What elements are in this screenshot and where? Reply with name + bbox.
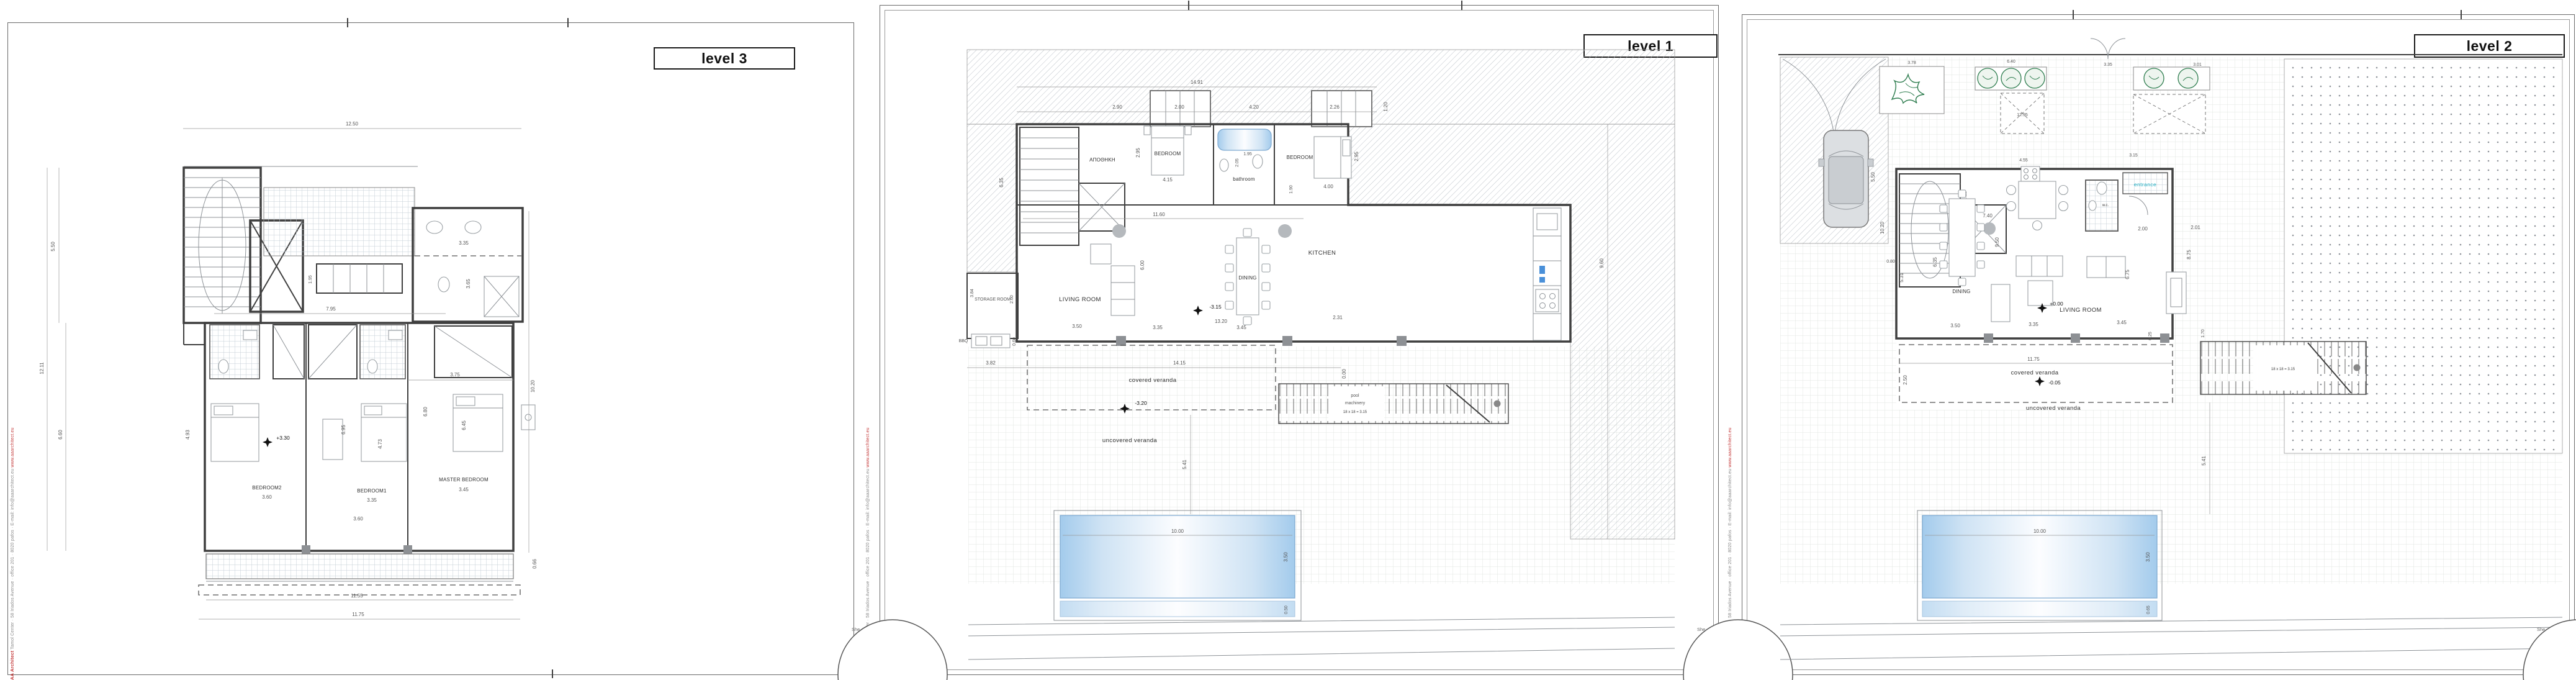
svg-text:5.50: 5.50	[1870, 172, 1876, 182]
svg-text:0.65: 0.65	[2146, 605, 2151, 614]
svg-text:bathroom: bathroom	[1233, 176, 1255, 182]
storage-room: STORAGE ROOM 3.84 2.60	[967, 273, 1018, 338]
svg-text:6.80: 6.80	[423, 407, 428, 417]
svg-text:2.00: 2.00	[2138, 226, 2148, 232]
bed-master	[453, 394, 503, 451]
room-label-master-bedroom: MASTER BEDROOM	[439, 477, 489, 483]
svg-text:6.95: 6.95	[341, 425, 346, 435]
level-marker: -0.05	[2048, 379, 2061, 386]
svg-text:3.75: 3.75	[450, 372, 460, 378]
level-marker: -3.15	[1209, 304, 1222, 310]
svg-text:3.50: 3.50	[1072, 324, 1082, 329]
svg-text:2.26: 2.26	[1330, 104, 1340, 110]
svg-text:5.50: 5.50	[50, 242, 56, 252]
svg-text:4.93: 4.93	[185, 430, 191, 440]
svg-text:13.20: 13.20	[1215, 319, 1228, 324]
svg-text:4.00: 4.00	[1323, 184, 1333, 189]
svg-text:1.20: 1.20	[1383, 102, 1389, 112]
level1-plan: ΑΠΟΘΗΚΗ BEDROOM 4.15 2.95 bathroom 1.95 …	[959, 1, 1793, 680]
svg-text:5.41: 5.41	[2201, 456, 2207, 466]
wc: w.c.	[2086, 180, 2118, 231]
svg-text:9.50: 9.50	[1994, 237, 2000, 247]
svg-text:She: She	[852, 627, 860, 632]
svg-text:LIVING ROOM: LIVING ROOM	[1059, 296, 1101, 303]
dim: 3.35	[459, 240, 469, 246]
svg-text:8.75: 8.75	[2186, 250, 2192, 260]
pool: 10.00 3.50 0.65	[1917, 510, 2162, 620]
svg-text:4.73: 4.73	[377, 439, 383, 449]
skylight	[2133, 94, 2205, 134]
svg-text:0.00: 0.00	[1341, 369, 1347, 379]
pool: 10.00 3.50 0.50	[1054, 510, 1301, 620]
bedroom-band: BEDROOM2 BEDROOM1 MASTER BEDROOM 3.60 3.…	[185, 323, 535, 554]
svg-text:4.20: 4.20	[1249, 104, 1259, 110]
svg-text:10.20: 10.20	[530, 379, 536, 392]
svg-text:14.91: 14.91	[1191, 79, 1204, 85]
car	[1819, 130, 1873, 227]
dim: 3.60	[262, 494, 272, 500]
room-label-apothiki: ΑΠΟΘΗΚΗ	[1089, 157, 1115, 163]
level-marker: +0.00	[2050, 301, 2063, 307]
svg-text:6.35: 6.35	[1932, 257, 1938, 267]
dim: 3.65	[466, 279, 471, 289]
dim: 12.50	[346, 121, 359, 127]
svg-text:11.55: 11.55	[351, 593, 363, 599]
svg-text:7.40: 7.40	[1983, 213, 1993, 219]
pool-machinery: pool machinery 18 x 18 = 3.15	[1279, 384, 1508, 424]
bed	[361, 404, 407, 461]
svg-text:3.50: 3.50	[2145, 552, 2151, 562]
svg-text:3.78: 3.78	[1907, 61, 1916, 65]
svg-text:6.75: 6.75	[2125, 270, 2130, 279]
column	[1278, 224, 1292, 238]
svg-text:9.60: 9.60	[1599, 258, 1605, 268]
svg-text:DINING: DINING	[1238, 275, 1256, 281]
svg-text:DINING: DINING	[1952, 289, 1970, 294]
svg-text:BBQ: BBQ	[959, 339, 968, 343]
svg-text:entrance: entrance	[2134, 181, 2156, 188]
svg-text:10.00: 10.00	[1171, 528, 1184, 534]
svg-text:2.31: 2.31	[1333, 315, 1343, 320]
wardrobe-row: 1.95	[308, 264, 402, 293]
uncovered-veranda-label: uncovered veranda	[1102, 437, 1157, 444]
sheet-stamp: She	[1683, 620, 1793, 680]
bed	[211, 404, 259, 461]
sheet-stamp: She	[2523, 620, 2576, 680]
svg-text:3.50: 3.50	[1950, 323, 1960, 329]
svg-text:2.95: 2.95	[1135, 148, 1141, 158]
level2-plan: 5.50 10.20 0.80 3.78 6.40 3.35 3.	[1778, 10, 2576, 680]
svg-text:3.84: 3.84	[970, 289, 975, 297]
svg-text:12.95: 12.95	[2017, 113, 2028, 117]
plans-canvas: 12.50 3.35	[0, 0, 2576, 680]
svg-text:LIVING ROOM: LIVING ROOM	[2060, 307, 2102, 314]
level-marker-icon	[263, 437, 272, 447]
svg-text:3.35: 3.35	[2104, 63, 2112, 67]
dim: 3.60	[353, 516, 363, 522]
svg-text:She: She	[2537, 627, 2545, 632]
svg-text:11.60: 11.60	[1153, 212, 1165, 217]
svg-text:2.05: 2.05	[1235, 158, 1240, 167]
svg-text:3.82: 3.82	[986, 360, 996, 366]
svg-text:0.80: 0.80	[1886, 260, 1895, 264]
desk	[323, 419, 343, 460]
level-marker: +3.30	[276, 435, 290, 441]
svg-text:2.95: 2.95	[1354, 152, 1359, 161]
sheet-stamp: She	[838, 620, 947, 680]
svg-text:6.35: 6.35	[999, 178, 1004, 188]
covered-veranda-label: covered veranda	[1129, 377, 1177, 384]
dim: 3.35	[367, 497, 377, 503]
dim: 3.45	[459, 487, 469, 492]
room-label-bedroom1: BEDROOM1	[357, 488, 387, 494]
level3-plan: 12.50 3.35	[39, 18, 947, 680]
svg-text:0.25: 0.25	[2148, 332, 2153, 340]
svg-text:0.50: 0.50	[1284, 605, 1289, 614]
svg-text:1.70: 1.70	[2201, 329, 2205, 338]
svg-text:11.75: 11.75	[2027, 356, 2040, 362]
uncovered-veranda-label: uncovered veranda	[2026, 405, 2081, 412]
svg-text:5.31: 5.31	[1899, 273, 1904, 283]
svg-text:2.00: 2.00	[1174, 104, 1184, 110]
svg-text:18 x 18 = 3.15: 18 x 18 = 3.15	[2271, 368, 2295, 371]
svg-text:3.15: 3.15	[2129, 153, 2138, 158]
svg-text:3.50: 3.50	[1283, 552, 1289, 562]
svg-text:3.45: 3.45	[2117, 320, 2127, 325]
svg-text:18 x 18 = 3.15: 18 x 18 = 3.15	[1343, 410, 1367, 414]
svg-text:6.45: 6.45	[461, 420, 467, 430]
svg-text:0.60: 0.60	[1012, 337, 1017, 346]
svg-text:3.45: 3.45	[1236, 325, 1246, 330]
exterior-steps: 18 x 18 = 3.15	[2200, 342, 2366, 394]
balcony	[199, 554, 520, 595]
tree: 3.78	[1880, 61, 1944, 114]
svg-text:2.60: 2.60	[1010, 295, 1014, 304]
covered-veranda-label: covered veranda	[2011, 369, 2059, 376]
svg-text:0.66: 0.66	[532, 559, 538, 569]
svg-text:4.55: 4.55	[2019, 158, 2028, 163]
scanned-floorplan-sheets: level 3 level 1 level 2 AA Architect Tam…	[0, 0, 2576, 680]
svg-text:1.95: 1.95	[1243, 152, 1252, 156]
svg-text:2.50: 2.50	[1903, 375, 1908, 385]
dim: 1.95	[308, 275, 313, 284]
svg-text:14.15: 14.15	[1173, 360, 1186, 366]
svg-text:machinery: machinery	[1345, 401, 1366, 406]
svg-text:STORAGE ROOM: STORAGE ROOM	[975, 297, 1011, 302]
svg-text:6.60: 6.60	[58, 430, 63, 440]
svg-text:12.11: 12.11	[39, 362, 45, 374]
svg-text:10.20: 10.20	[1880, 221, 1885, 234]
planter	[2133, 67, 2210, 90]
svg-text:10.00: 10.00	[2033, 528, 2047, 534]
svg-text:pool: pool	[1351, 394, 1359, 398]
svg-text:3.35: 3.35	[2029, 322, 2038, 327]
svg-text:BEDROOM: BEDROOM	[1287, 155, 1313, 160]
svg-text:2.90: 2.90	[1112, 104, 1122, 110]
svg-text:6.00: 6.00	[1140, 260, 1145, 270]
svg-text:6.40: 6.40	[2007, 60, 2015, 64]
svg-text:4.15: 4.15	[1163, 177, 1173, 183]
column	[1112, 224, 1126, 238]
master-bathroom: 3.35 3.65	[413, 208, 523, 322]
svg-text:3.01: 3.01	[2193, 63, 2202, 67]
roof-terrace	[264, 188, 415, 256]
svg-text:3.35: 3.35	[1153, 325, 1163, 330]
svg-text:1.90: 1.90	[1289, 185, 1294, 194]
dim: 7.95	[326, 306, 336, 312]
skylight: 12.95	[2001, 93, 2044, 134]
svg-text:2.01: 2.01	[2191, 225, 2200, 230]
level-marker: -3.20	[1135, 400, 1147, 406]
room-label-bedroom2: BEDROOM2	[252, 485, 282, 491]
svg-text:11.75: 11.75	[352, 612, 364, 617]
svg-text:KITCHEN: KITCHEN	[1308, 250, 1336, 256]
svg-text:w.c.: w.c.	[2102, 204, 2109, 207]
svg-text:She: She	[1697, 627, 1705, 632]
svg-text:BEDROOM: BEDROOM	[1155, 151, 1181, 156]
svg-text:5.41: 5.41	[1182, 460, 1187, 469]
